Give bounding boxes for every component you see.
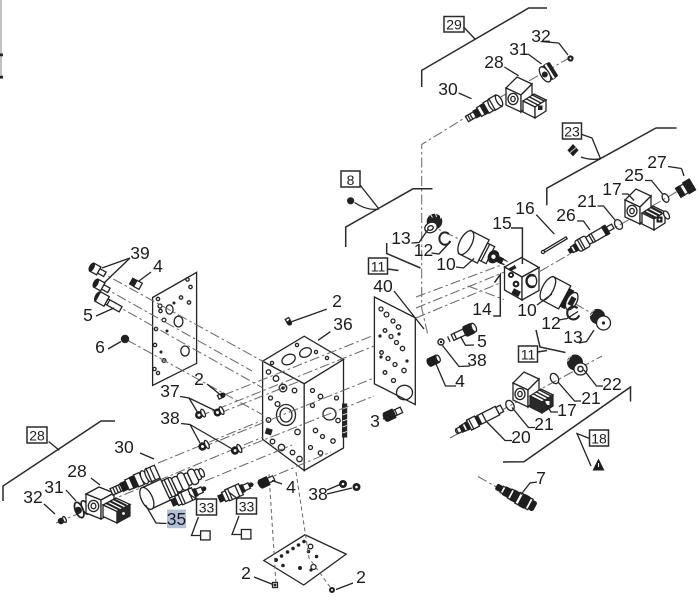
svg-text:33: 33 [199,500,215,516]
svg-text:21: 21 [577,191,596,211]
svg-text:3: 3 [370,411,380,431]
svg-text:10: 10 [436,254,456,274]
svg-text:4: 4 [286,477,296,497]
svg-text:38: 38 [308,484,327,504]
svg-text:28: 28 [29,428,45,444]
svg-text:38: 38 [467,350,486,370]
svg-text:31: 31 [509,39,528,59]
svg-text:5: 5 [477,331,487,351]
svg-text:23: 23 [564,124,580,140]
svg-text:40: 40 [373,276,393,296]
svg-text:11: 11 [521,347,536,363]
svg-text:13: 13 [391,228,410,248]
svg-text:26: 26 [556,205,575,225]
svg-text:29: 29 [446,17,462,33]
svg-text:37: 37 [160,381,179,401]
svg-text:14: 14 [472,299,492,319]
svg-text:30: 30 [438,79,458,99]
svg-text:27: 27 [647,152,666,172]
svg-text:8: 8 [347,172,355,188]
svg-text:5: 5 [83,305,93,325]
svg-text:11: 11 [371,259,386,275]
svg-text:17: 17 [602,179,621,199]
svg-text:21: 21 [534,414,553,434]
svg-text:4: 4 [153,256,163,276]
svg-text:38: 38 [160,408,179,428]
svg-text:18: 18 [591,431,607,447]
svg-text:15: 15 [492,213,511,233]
svg-text:2: 2 [356,567,366,587]
svg-text:2: 2 [332,291,342,311]
svg-text:30: 30 [114,437,134,457]
svg-text:20: 20 [511,427,531,447]
svg-text:28: 28 [67,461,86,481]
svg-text:32: 32 [531,26,550,46]
svg-text:33: 33 [239,499,255,515]
svg-text:2: 2 [194,369,204,389]
svg-text:13: 13 [563,327,582,347]
svg-text:31: 31 [44,477,63,497]
svg-text:16: 16 [515,198,534,218]
svg-text:22: 22 [602,374,621,394]
svg-text:2: 2 [241,563,251,583]
svg-text:7: 7 [536,468,546,488]
svg-text:4: 4 [455,371,465,391]
svg-text:25: 25 [624,165,643,185]
svg-text:35: 35 [167,509,186,529]
svg-text:21: 21 [581,388,600,408]
svg-text:12: 12 [414,240,433,260]
svg-text:39: 39 [130,243,149,263]
svg-text:28: 28 [484,52,503,72]
svg-text:6: 6 [95,337,105,357]
svg-text:32: 32 [23,487,42,507]
svg-text:17: 17 [557,400,576,420]
svg-text:12: 12 [541,313,560,333]
svg-text:10: 10 [517,300,537,320]
svg-text:36: 36 [333,314,352,334]
